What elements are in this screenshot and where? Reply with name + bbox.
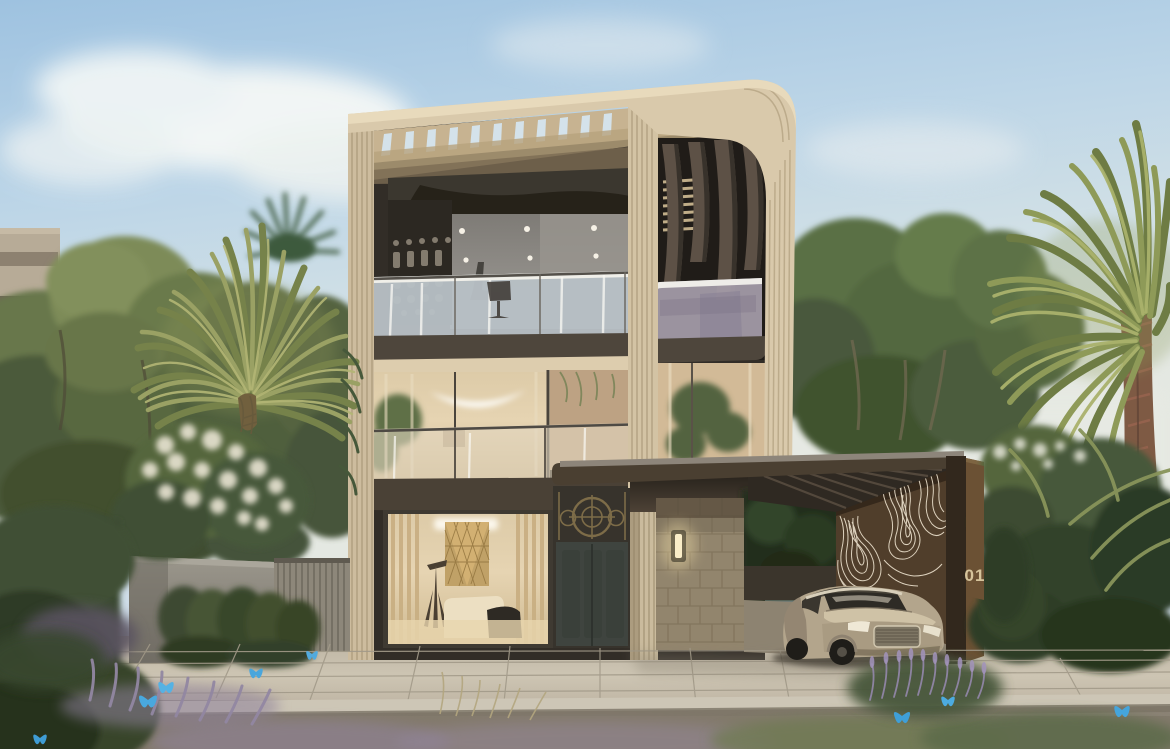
svg-text:01: 01 [965, 566, 986, 585]
